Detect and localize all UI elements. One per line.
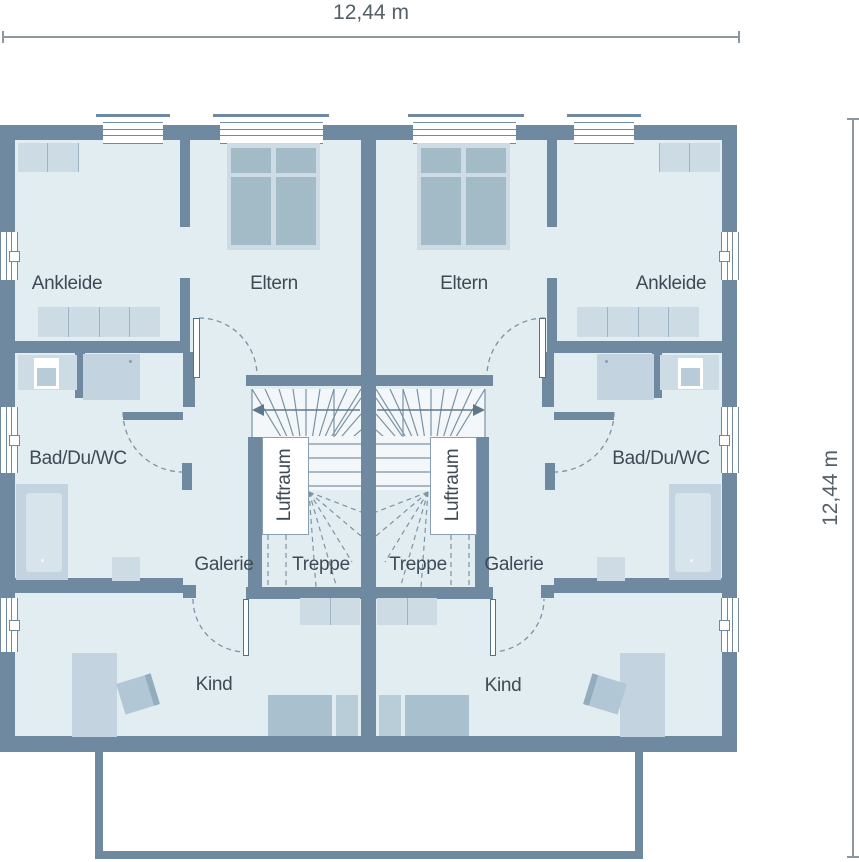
door-leaf-kind-left <box>243 599 249 656</box>
door-arc-bad-right <box>554 412 614 472</box>
room-label-eltern-right: Eltern <box>440 273 488 295</box>
door-leaf-kind-right <box>490 599 496 656</box>
floor-plan-canvas: 12,44 m 12,44 m <box>0 0 859 862</box>
straight-treads-right <box>376 389 430 486</box>
room-label-treppe-right: Treppe <box>389 554 447 576</box>
room-label-galerie-left: Galerie <box>194 554 253 576</box>
room-label-luftraum-right: Luftraum <box>442 449 464 522</box>
straight-treads-left <box>307 389 361 486</box>
door-arc-kind-right <box>491 599 544 652</box>
room-label-kind-left: Kind <box>196 674 233 696</box>
room-label-galerie-right: Galerie <box>484 554 543 576</box>
door-arc-eltern-right <box>487 318 545 376</box>
door-leaf-eltern-left <box>193 318 200 378</box>
room-label-treppe-left: Treppe <box>292 554 350 576</box>
room-label-luftraum-left: Luftraum <box>274 449 296 522</box>
door-arc-kind-left <box>193 599 246 652</box>
door-arc-eltern-left <box>199 318 257 376</box>
room-label-ankleide-right: Ankleide <box>636 273 706 295</box>
room-label-ankleide-left: Ankleide <box>32 273 102 295</box>
door-arc-bad-left <box>123 412 183 472</box>
room-label-bad-left: Bad/Du/WC <box>29 448 127 470</box>
room-label-eltern-left: Eltern <box>250 273 298 295</box>
door-leaf-eltern-right <box>539 318 546 378</box>
room-label-kind-right: Kind <box>485 675 522 697</box>
room-label-bad-right: Bad/Du/WC <box>612 448 710 470</box>
stairs-and-doors-linework <box>0 0 859 862</box>
